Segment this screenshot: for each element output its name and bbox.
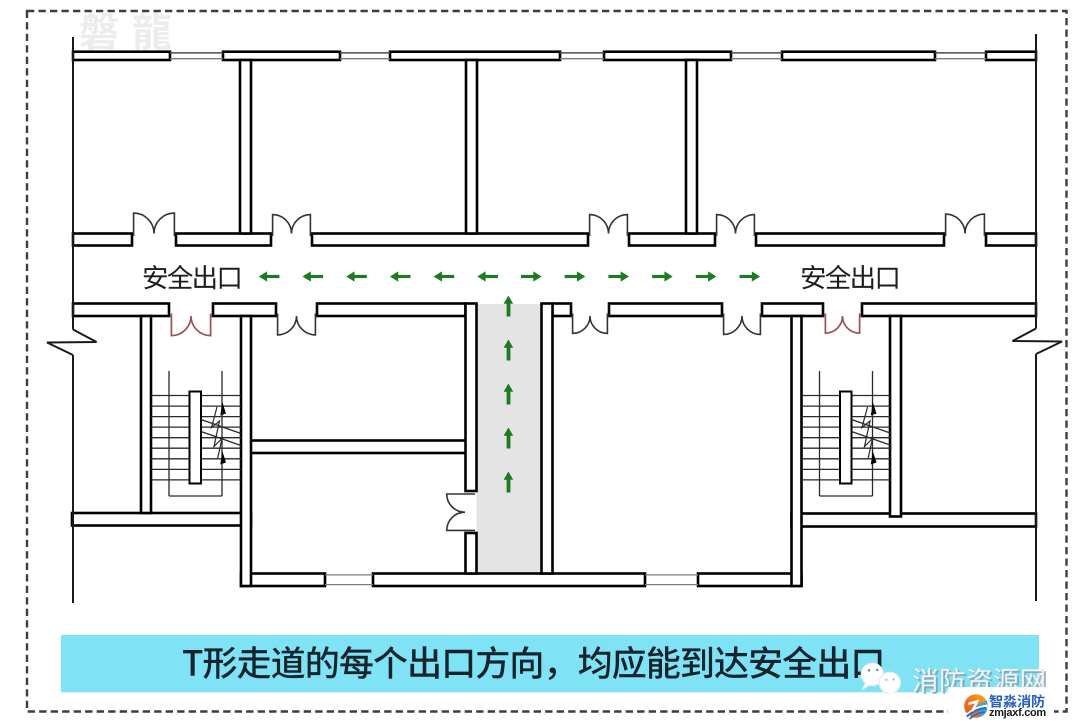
- svg-text:zmjaxf.com: zmjaxf.com: [989, 707, 1046, 719]
